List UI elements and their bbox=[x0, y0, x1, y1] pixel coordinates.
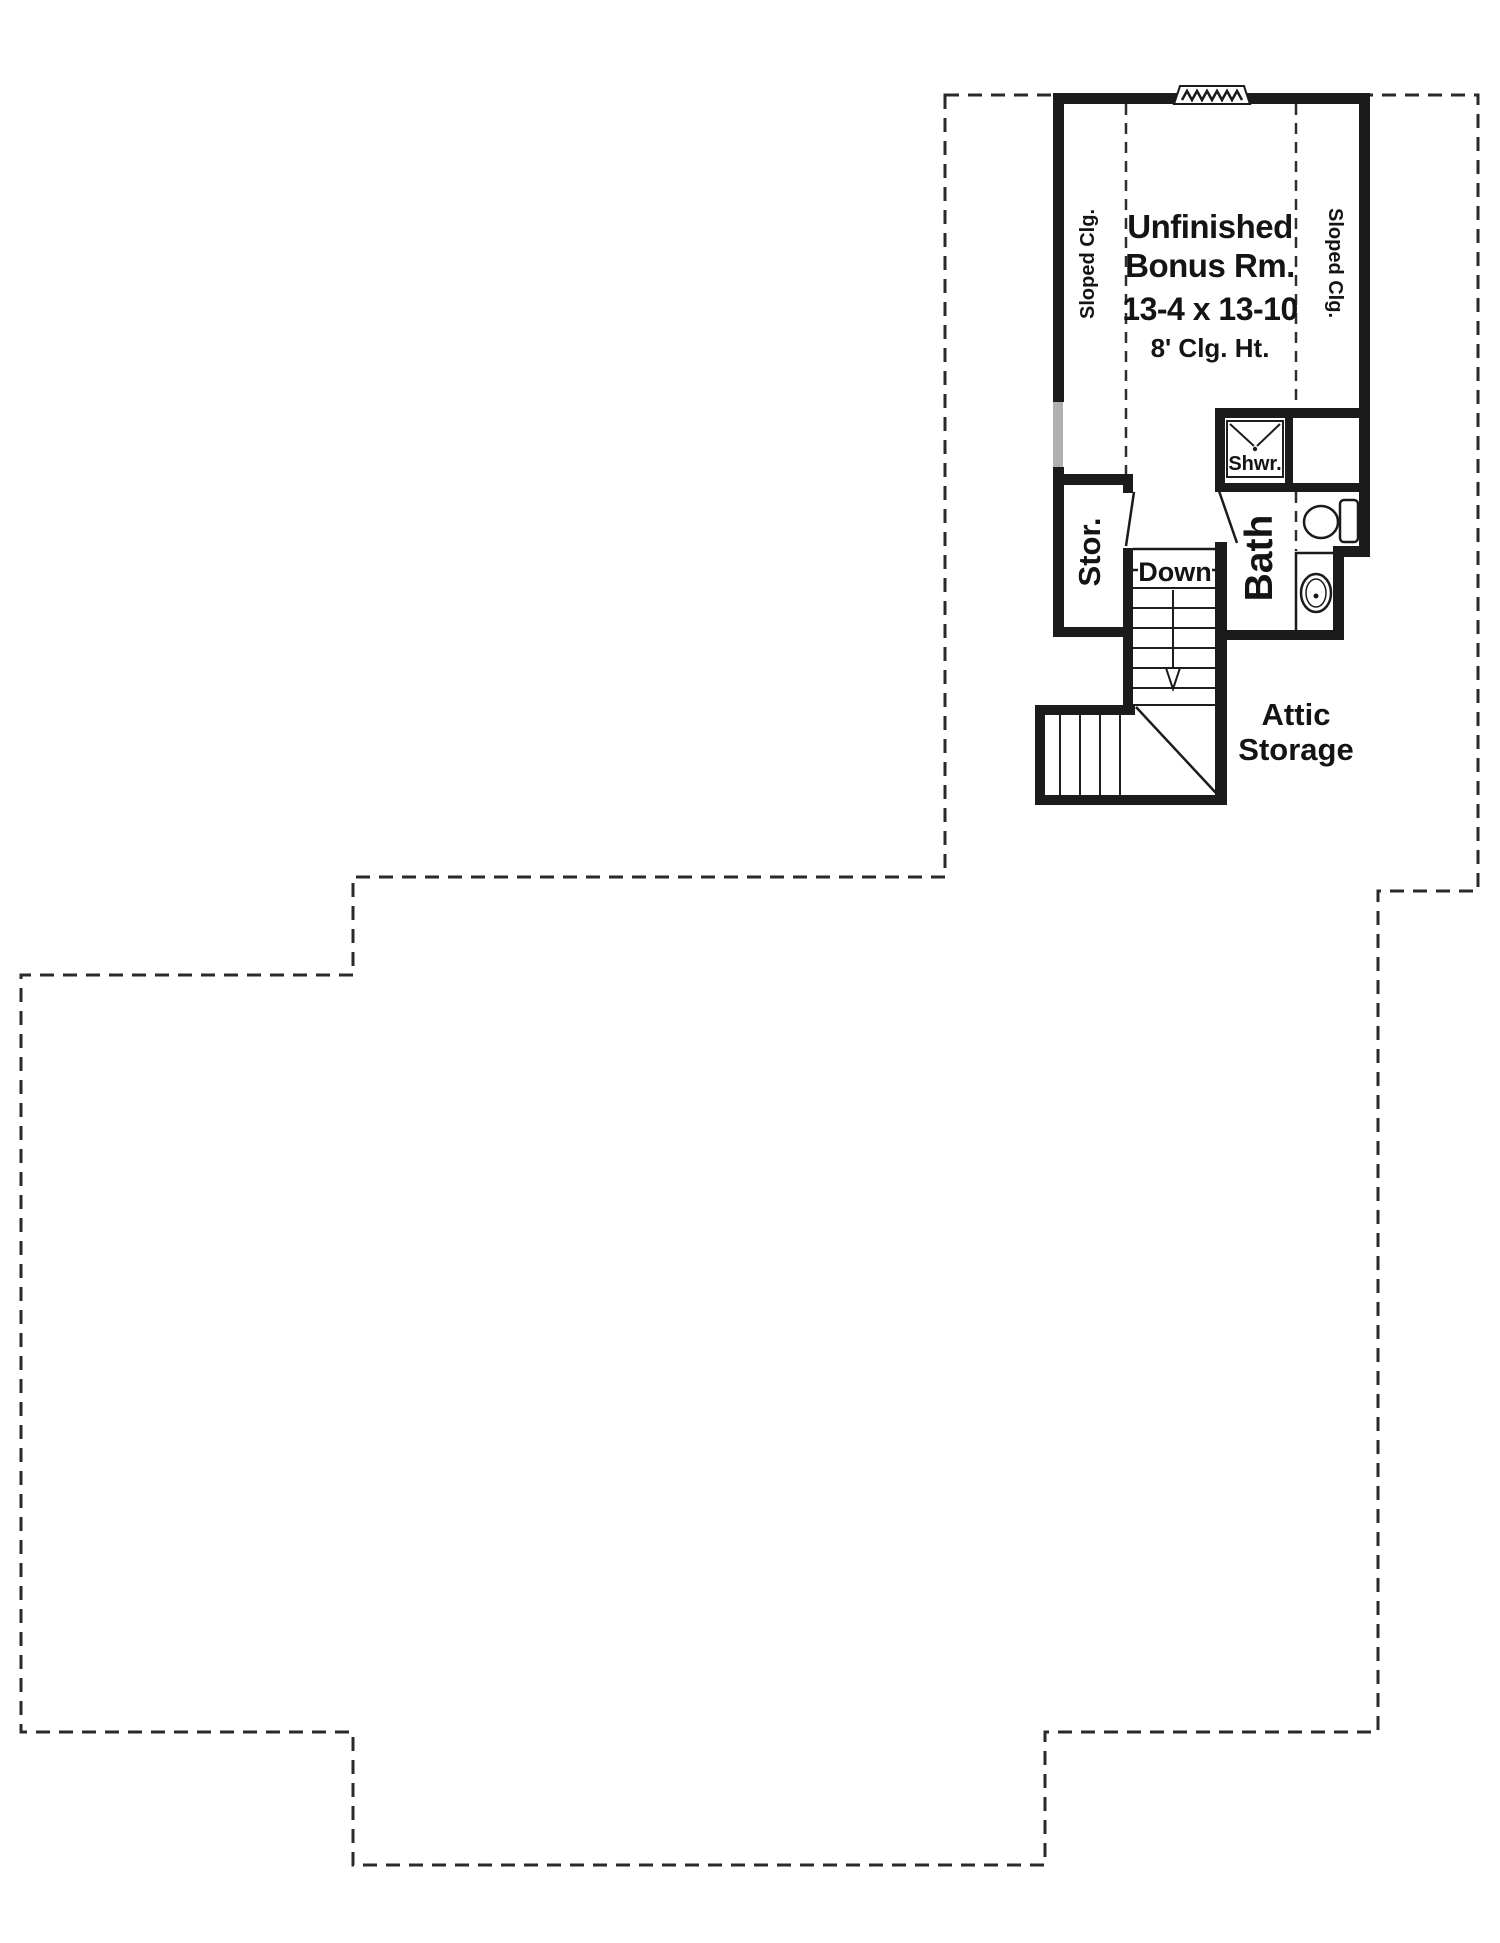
bonus-left-wall-upper bbox=[1053, 93, 1064, 402]
bonus-room-label-line1: Unfinished bbox=[1127, 208, 1293, 245]
storage-door-leaf bbox=[1126, 492, 1134, 546]
bonus-room-label-line2: Bonus Rm. bbox=[1125, 247, 1295, 284]
toilet-tank bbox=[1340, 500, 1358, 542]
sloped-ceiling-label-left: Sloped Clg. bbox=[1077, 209, 1099, 319]
stairs-down-label: Down bbox=[1138, 557, 1212, 587]
floor-plan-page: Unfinished Bonus Rm. 13-4 x 13-10 8' Clg… bbox=[0, 0, 1500, 1943]
toilet-bowl bbox=[1304, 506, 1338, 538]
shower-right-wall bbox=[1285, 418, 1293, 492]
bath-fixtures bbox=[1296, 500, 1358, 630]
down-arrow-head bbox=[1166, 668, 1180, 689]
bonus-left-wall-lower bbox=[1053, 467, 1064, 637]
shower-diagonal-left bbox=[1230, 424, 1254, 446]
shower-left-wall bbox=[1215, 408, 1225, 492]
left-wall-window bbox=[1053, 402, 1063, 467]
attic-storage-label-line1: Attic bbox=[1262, 697, 1331, 732]
shower-drain bbox=[1253, 447, 1257, 451]
sink-drain bbox=[1314, 594, 1319, 599]
bath-top-wall bbox=[1215, 483, 1370, 492]
stair-box-bottom-wall bbox=[1035, 795, 1227, 805]
bath-room-label: Bath bbox=[1238, 515, 1281, 602]
doors bbox=[1126, 491, 1237, 546]
shower-label: Shwr. bbox=[1228, 453, 1281, 475]
bonus-right-wall bbox=[1359, 93, 1370, 492]
winder-diagonal bbox=[1136, 707, 1216, 793]
attic-storage-label-line2: Storage bbox=[1238, 732, 1353, 767]
bath-right-wall-upper bbox=[1359, 483, 1370, 557]
stair-right-wall bbox=[1215, 542, 1227, 805]
shower-top-wall bbox=[1215, 408, 1370, 418]
bath-right-wall-lower bbox=[1333, 546, 1344, 640]
storage-right-wall-stub bbox=[1123, 474, 1133, 493]
bath-bottom-wall bbox=[1218, 630, 1344, 640]
winder-treads bbox=[1060, 715, 1120, 795]
floor-plan-drawing: Unfinished Bonus Rm. 13-4 x 13-10 8' Clg… bbox=[0, 0, 1500, 1943]
storage-bottom-wall bbox=[1053, 627, 1133, 637]
bath-door-leaf bbox=[1219, 491, 1237, 543]
shower-diagonal-right bbox=[1257, 424, 1280, 446]
storage-top-wall bbox=[1053, 474, 1133, 485]
storage-room-label: Stor. bbox=[1072, 518, 1107, 587]
stair-box-top-wall bbox=[1035, 705, 1135, 715]
stair-left-wall bbox=[1123, 548, 1133, 713]
ridge-vent bbox=[1174, 86, 1250, 104]
stair-box-left-wall bbox=[1035, 705, 1045, 805]
bonus-room-dimensions: 13-4 x 13-10 bbox=[1122, 291, 1297, 327]
bonus-room-ceiling-height: 8' Clg. Ht. bbox=[1151, 333, 1270, 363]
sloped-ceiling-label-right: Sloped Clg. bbox=[1324, 208, 1346, 318]
